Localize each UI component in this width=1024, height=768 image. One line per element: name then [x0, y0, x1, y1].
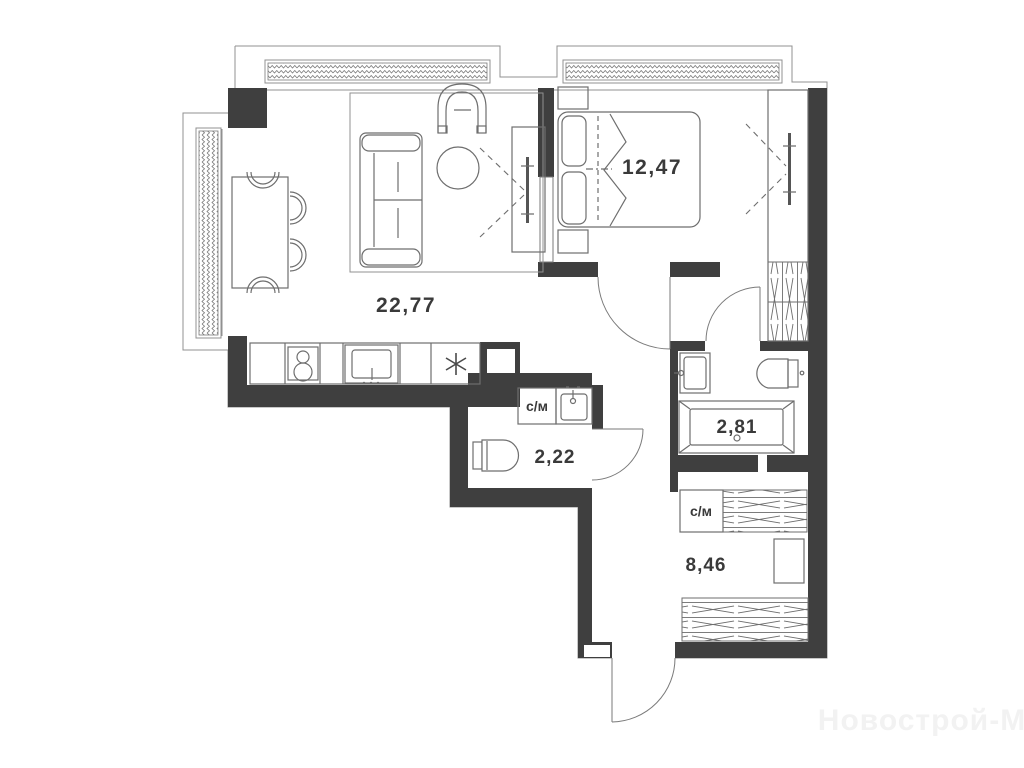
stove-icon — [288, 347, 318, 381]
hall-cabinet — [774, 539, 804, 583]
dining-table — [232, 177, 288, 288]
bedroom-door — [598, 277, 670, 349]
hall-washing-machine-label: с/м — [690, 503, 712, 519]
wc-sink-icon — [556, 387, 592, 424]
wardrobe-column-bedroom — [768, 90, 808, 341]
wc-washing-machine: с/м — [518, 388, 556, 424]
wc-washing-machine-label: с/м — [526, 398, 548, 414]
entrance-door — [612, 658, 675, 722]
armchair — [438, 84, 486, 133]
hall-closet-top — [723, 490, 807, 532]
hall-closet-bottom — [682, 598, 808, 641]
door-frame-recess — [584, 645, 610, 657]
window-left — [196, 128, 221, 338]
kitchen-sink-icon — [345, 345, 398, 384]
window-living — [265, 60, 490, 83]
sofa — [360, 133, 422, 267]
tv-stand-living — [480, 127, 545, 252]
wc-toilet-icon — [473, 440, 518, 471]
bath-sink-icon — [674, 353, 710, 393]
room-label-bathroom: 2,81 — [717, 417, 758, 438]
floor-plan: с/м с/м — [0, 0, 1024, 768]
room-label-wc: 2,22 — [535, 447, 576, 468]
hall-washing-machine: с/м — [680, 490, 723, 532]
fridge-star-icon — [446, 353, 466, 375]
coffee-table — [437, 147, 479, 189]
kitchen-counter — [250, 343, 480, 384]
light-partition — [540, 177, 553, 262]
duct-shaft — [487, 349, 515, 376]
window-bedroom — [563, 60, 782, 83]
room-label-living: 22,77 — [376, 294, 436, 317]
floor-plan-drawing: с/м с/м — [0, 0, 1024, 768]
bath-toilet-icon — [757, 359, 804, 388]
room-label-bedroom: 12,47 — [622, 156, 682, 179]
tv-bedroom — [746, 124, 796, 214]
nightstand — [558, 230, 588, 253]
bathroom-door — [706, 287, 760, 341]
watermark: Новострой-М — [818, 704, 1024, 737]
wc-door — [592, 429, 643, 480]
room-label-hallway: 8,46 — [686, 555, 727, 576]
